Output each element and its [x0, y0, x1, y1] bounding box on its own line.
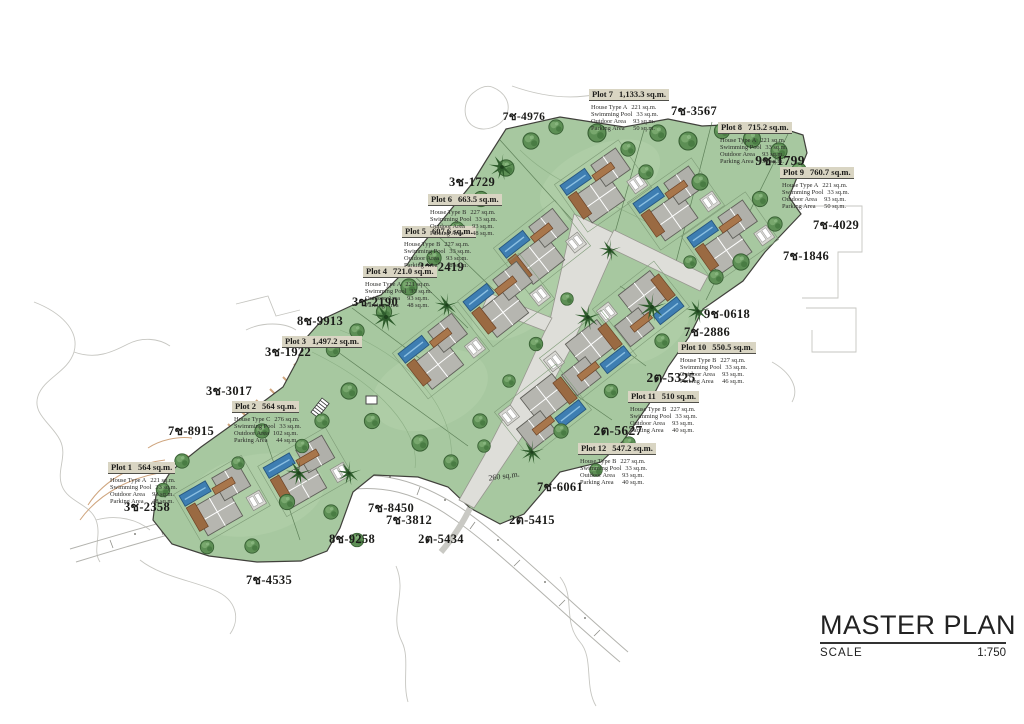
plot-details: House Type A221 sq.m.Swimming Pool33 sq.… — [110, 477, 174, 505]
detail-label: Parking Area — [365, 302, 399, 309]
parcel-number-label: 7ช-1846 — [783, 246, 829, 266]
plot-detail-row: Swimming Pool33 sq.m. — [720, 144, 784, 151]
plot-detail-row: Parking Area50 sq.m. — [720, 158, 784, 165]
detail-value: 48 sq.m. — [152, 498, 174, 505]
parcel-number-label: 7ช-4976 — [503, 108, 546, 126]
detail-label: Parking Area — [580, 479, 614, 486]
plot-name: Plot 11 — [631, 391, 656, 402]
detail-value: 93 sq.m. — [622, 472, 644, 479]
detail-label: Swimming Pool — [782, 189, 823, 196]
plot-info-card: Plot 12547.2 sq.m.House Type B227 sq.m.S… — [578, 438, 656, 486]
plot-area: 510 sq.m. — [662, 391, 696, 402]
plot-info-card: Plot 11510 sq.m.House Type B227 sq.m.Swi… — [628, 386, 699, 434]
detail-label: Parking Area — [430, 230, 464, 237]
plot-name: Plot 4 — [366, 266, 387, 277]
detail-label: Outdoor Area — [234, 430, 269, 437]
plot-detail-row: Parking Area40 sq.m. — [580, 479, 644, 486]
title-divider — [820, 642, 1006, 644]
detail-value: 50 sq.m. — [824, 203, 846, 210]
detail-value: 48 sq.m. — [472, 230, 494, 237]
detail-value: 46 sq.m. — [722, 378, 744, 385]
plot-title: Plot 9760.7 sq.m. — [780, 167, 854, 179]
plot-detail-row: Swimming Pool33 sq.m. — [591, 111, 655, 118]
scale-value: 1:750 — [977, 647, 1006, 659]
plot-area: 550.5 sq.m. — [712, 342, 753, 353]
plot-details: House Type B227 sq.m.Swimming Pool33 sq.… — [680, 357, 744, 385]
detail-label: House Type A — [591, 104, 627, 111]
detail-value: 221 sq.m. — [822, 182, 847, 189]
plot-detail-row: Parking Area40 sq.m. — [630, 427, 694, 434]
plot-title: Plot 8715.2 sq.m. — [718, 122, 792, 134]
drawing-title: MASTER PLAN — [820, 610, 1006, 640]
plot-details: House Type B227 sq.m.Swimming Pool33 sq.… — [404, 241, 468, 269]
plot-detail-row: House Type A221 sq.m. — [782, 182, 846, 189]
detail-value: 33 sq.m. — [725, 364, 747, 371]
detail-label: Parking Area — [234, 437, 268, 444]
detail-label: Outdoor Area — [630, 420, 665, 427]
plot-detail-row: Parking Area46 sq.m. — [680, 378, 744, 385]
detail-value: 33 sq.m. — [449, 248, 471, 255]
plot-name: Plot 9 — [783, 167, 804, 178]
detail-value: 102 sq.m. — [273, 430, 298, 437]
detail-value: 276 sq.m. — [274, 416, 299, 423]
plot-info-card: Plot 9760.7 sq.m.House Type A221 sq.m.Sw… — [780, 162, 854, 210]
detail-value: 93 sq.m. — [633, 118, 655, 125]
detail-value: 33 sq.m. — [636, 111, 658, 118]
plot-title: Plot 10550.5 sq.m. — [678, 342, 756, 354]
scale-label: SCALE — [820, 647, 863, 659]
detail-value: 227 sq.m. — [620, 458, 645, 465]
plot-info-card: Plot 31,497.2 sq.m. — [282, 331, 362, 349]
detail-value: 33 sq.m. — [155, 484, 177, 491]
master-plan-drawing: Plot 1564 sq.m.House Type A221 sq.m.Swim… — [0, 0, 1024, 724]
detail-value: 48 sq.m. — [446, 262, 468, 269]
plot-title: Plot 1564 sq.m. — [108, 462, 175, 474]
detail-label: Swimming Pool — [234, 423, 275, 430]
plot-name: Plot 2 — [235, 401, 256, 412]
detail-label: Outdoor Area — [404, 255, 439, 262]
detail-label: Outdoor Area — [680, 371, 715, 378]
plot-detail-row: Parking Area48 sq.m. — [110, 498, 174, 505]
detail-value: 33 sq.m. — [410, 288, 432, 295]
parcel-number-label: 7ช-6061 — [537, 477, 583, 497]
detail-value: 221 sq.m. — [405, 281, 430, 288]
plot-detail-row: House Type C276 sq.m. — [234, 416, 298, 423]
parcel-number-label: 8ช-9258 — [329, 529, 375, 549]
plot-details: House Type A221 sq.m.Swimming Pool33 sq.… — [591, 104, 655, 132]
plot-detail-row: Parking Area44 sq.m. — [234, 437, 298, 444]
detail-value: 93 sq.m. — [762, 151, 784, 158]
plot-area: 547.2 sq.m. — [612, 443, 653, 454]
detail-label: House Type B — [404, 241, 440, 248]
detail-label: Outdoor Area — [720, 151, 755, 158]
detail-label: House Type A — [782, 182, 818, 189]
plot-info-card: Plot 10550.5 sq.m.House Type B227 sq.m.S… — [678, 337, 756, 385]
plot-detail-row: House Type B227 sq.m. — [580, 458, 644, 465]
plot-detail-row: House Type A221 sq.m. — [365, 281, 429, 288]
plot-detail-row: Outdoor Area93 sq.m. — [430, 223, 494, 230]
detail-value: 93 sq.m. — [446, 255, 468, 262]
detail-label: Outdoor Area — [430, 223, 465, 230]
detail-value: 227 sq.m. — [470, 209, 495, 216]
plot-area: 1,497.2 sq.m. — [312, 336, 359, 347]
plot-detail-row: Parking Area50 sq.m. — [591, 125, 655, 132]
detail-value: 93 sq.m. — [472, 223, 494, 230]
parcel-number-label: 7ช-4029 — [813, 215, 859, 235]
plot-details: House Type B227 sq.m.Swimming Pool33 sq.… — [630, 406, 694, 434]
detail-value: 33 sq.m. — [827, 189, 849, 196]
plot-detail-row: Swimming Pool33 sq.m. — [234, 423, 298, 430]
plot-detail-row: Outdoor Area93 sq.m. — [404, 255, 468, 262]
detail-label: Swimming Pool — [404, 248, 445, 255]
detail-label: Outdoor Area — [580, 472, 615, 479]
detail-value: 221 sq.m. — [150, 477, 175, 484]
plot-area: 1,133.3 sq.m. — [619, 89, 666, 100]
plot-details: House Type B227 sq.m.Swimming Pool33 sq.… — [580, 458, 644, 486]
detail-value: 93 sq.m. — [722, 371, 744, 378]
detail-label: House Type A — [365, 281, 401, 288]
plot-detail-row: Outdoor Area93 sq.m. — [782, 196, 846, 203]
plot-detail-row: House Type A221 sq.m. — [591, 104, 655, 111]
plot-detail-row: House Type B227 sq.m. — [404, 241, 468, 248]
detail-label: Outdoor Area — [110, 491, 145, 498]
plot-title: Plot 6663.5 sq.m. — [428, 194, 502, 206]
detail-label: Parking Area — [630, 427, 664, 434]
detail-value: 33 sq.m. — [675, 413, 697, 420]
detail-value: 33 sq.m. — [625, 465, 647, 472]
detail-label: Outdoor Area — [365, 295, 400, 302]
detail-label: Parking Area — [720, 158, 754, 165]
detail-label: House Type C — [234, 416, 270, 423]
plot-detail-row: Swimming Pool33 sq.m. — [680, 364, 744, 371]
plot-title: Plot 31,497.2 sq.m. — [282, 336, 362, 348]
plot-detail-row: House Type A221 sq.m. — [720, 137, 784, 144]
plot-details: House Type B227 sq.m.Swimming Pool33 sq.… — [430, 209, 494, 237]
detail-label: Swimming Pool — [110, 484, 151, 491]
detail-value: 227 sq.m. — [670, 406, 695, 413]
detail-label: Parking Area — [782, 203, 816, 210]
plot-name: Plot 3 — [285, 336, 306, 347]
plot-title: Plot 12547.2 sq.m. — [578, 443, 656, 455]
plot-detail-row: Swimming Pool33 sq.m. — [630, 413, 694, 420]
plot-info-card: Plot 71,133.3 sq.m.House Type A221 sq.m.… — [589, 84, 669, 132]
detail-label: Parking Area — [680, 378, 714, 385]
plot-detail-row: House Type A221 sq.m. — [110, 477, 174, 484]
detail-label: Parking Area — [110, 498, 144, 505]
plot-name: Plot 7 — [592, 89, 613, 100]
plot-details: House Type A221 sq.m.Swimming Pool33 sq.… — [720, 137, 784, 165]
plot-detail-row: House Type B227 sq.m. — [430, 209, 494, 216]
detail-label: House Type A — [720, 137, 756, 144]
plot-name: Plot 5 — [405, 226, 426, 237]
plot-title: Plot 2564 sq.m. — [232, 401, 299, 413]
plot-detail-row: Parking Area48 sq.m. — [430, 230, 494, 237]
detail-label: House Type B — [580, 458, 616, 465]
plot-area: 760.7 sq.m. — [810, 167, 851, 178]
plot-detail-row: Swimming Pool33 sq.m. — [782, 189, 846, 196]
plot-detail-row: Swimming Pool33 sq.m. — [110, 484, 174, 491]
detail-label: House Type B — [680, 357, 716, 364]
detail-value: 227 sq.m. — [444, 241, 469, 248]
detail-label: Swimming Pool — [591, 111, 632, 118]
parcel-number-label: 9ช-0618 — [704, 304, 750, 324]
parcel-number-label: 7ช-8915 — [168, 421, 214, 441]
plot-detail-row: Parking Area48 sq.m. — [365, 302, 429, 309]
detail-label: Parking Area — [404, 262, 438, 269]
detail-label: House Type A — [110, 477, 146, 484]
plot-name: Plot 1 — [111, 462, 132, 473]
plot-detail-row: Outdoor Area93 sq.m. — [110, 491, 174, 498]
detail-label: Parking Area — [591, 125, 625, 132]
parcel-number-label: 2ต-5415 — [509, 510, 555, 530]
plot-detail-row: Swimming Pool33 sq.m. — [404, 248, 468, 255]
detail-label: Swimming Pool — [720, 144, 761, 151]
detail-value: 40 sq.m. — [622, 479, 644, 486]
parcel-number-label: 7ช-3567 — [671, 101, 717, 121]
plot-details: House Type C276 sq.m.Swimming Pool33 sq.… — [234, 416, 298, 444]
plot-detail-row: Swimming Pool33 sq.m. — [430, 216, 494, 223]
plot-name: Plot 6 — [431, 194, 452, 205]
plot-title: Plot 71,133.3 sq.m. — [589, 89, 669, 101]
detail-label: Swimming Pool — [680, 364, 721, 371]
plot-details: House Type A221 sq.m.Swimming Pool33 sq.… — [782, 182, 846, 210]
detail-label: Swimming Pool — [630, 413, 671, 420]
plot-area: 715.2 sq.m. — [748, 122, 789, 133]
detail-value: 50 sq.m. — [633, 125, 655, 132]
plot-area: 564 sq.m. — [262, 401, 296, 412]
plot-info-card: Plot 2564 sq.m.House Type C276 sq.m.Swim… — [232, 396, 299, 444]
plot-info-card: Plot 8715.2 sq.m.House Type A221 sq.m.Sw… — [718, 117, 792, 165]
detail-value: 33 sq.m. — [765, 144, 787, 151]
plot-detail-row: Parking Area50 sq.m. — [782, 203, 846, 210]
detail-label: House Type B — [430, 209, 466, 216]
detail-value: 93 sq.m. — [152, 491, 174, 498]
plot-name: Plot 12 — [581, 443, 606, 454]
detail-label: Outdoor Area — [591, 118, 626, 125]
detail-value: 33 sq.m. — [475, 216, 497, 223]
detail-label: Swimming Pool — [580, 465, 621, 472]
plot-detail-row: Outdoor Area93 sq.m. — [630, 420, 694, 427]
plot-detail-row: Swimming Pool33 sq.m. — [365, 288, 429, 295]
detail-label: Outdoor Area — [782, 196, 817, 203]
plot-info-card: Plot 6663.5 sq.m.House Type B227 sq.m.Sw… — [428, 189, 502, 237]
plot-detail-row: Outdoor Area93 sq.m. — [580, 472, 644, 479]
plot-detail-row: House Type B227 sq.m. — [630, 406, 694, 413]
plot-name: Plot 8 — [721, 122, 742, 133]
detail-value: 221 sq.m. — [631, 104, 656, 111]
detail-value: 33 sq.m. — [279, 423, 301, 430]
plot-detail-row: Swimming Pool33 sq.m. — [580, 465, 644, 472]
parcel-number-label: 7ช-4535 — [246, 570, 292, 590]
parcel-number-label: 8ช-9913 — [297, 311, 343, 331]
detail-value: 93 sq.m. — [407, 295, 429, 302]
plot-detail-row: House Type B227 sq.m. — [680, 357, 744, 364]
detail-value: 93 sq.m. — [672, 420, 694, 427]
title-block: MASTER PLAN SCALE 1:750 — [820, 610, 1006, 659]
detail-label: Swimming Pool — [365, 288, 406, 295]
detail-value: 44 sq.m. — [276, 437, 298, 444]
plot-detail-row: Parking Area48 sq.m. — [404, 262, 468, 269]
plot-detail-row: Outdoor Area93 sq.m. — [680, 371, 744, 378]
detail-value: 93 sq.m. — [824, 196, 846, 203]
plot-area: 663.5 sq.m. — [458, 194, 499, 205]
detail-label: House Type B — [630, 406, 666, 413]
plot-name: Plot 10 — [681, 342, 706, 353]
parcel-number-label: 2ต-5434 — [418, 529, 464, 549]
parcel-number-label: 7ช-3812 — [386, 510, 432, 530]
plot-detail-row: Outdoor Area102 sq.m. — [234, 430, 298, 437]
detail-label: Swimming Pool — [430, 216, 471, 223]
plot-details: House Type A221 sq.m.Swimming Pool33 sq.… — [365, 281, 429, 309]
detail-value: 221 sq.m. — [760, 137, 785, 144]
plot-title: Plot 11510 sq.m. — [628, 391, 699, 403]
plot-detail-row: Outdoor Area93 sq.m. — [720, 151, 784, 158]
plot-detail-row: Outdoor Area93 sq.m. — [591, 118, 655, 125]
detail-value: 227 sq.m. — [720, 357, 745, 364]
plot-detail-row: Outdoor Area93 sq.m. — [365, 295, 429, 302]
plot-info-card: Plot 1564 sq.m.House Type A221 sq.m.Swim… — [108, 457, 175, 505]
plot-area: 564 sq.m. — [138, 462, 172, 473]
detail-value: 40 sq.m. — [672, 427, 694, 434]
detail-value: 48 sq.m. — [407, 302, 429, 309]
